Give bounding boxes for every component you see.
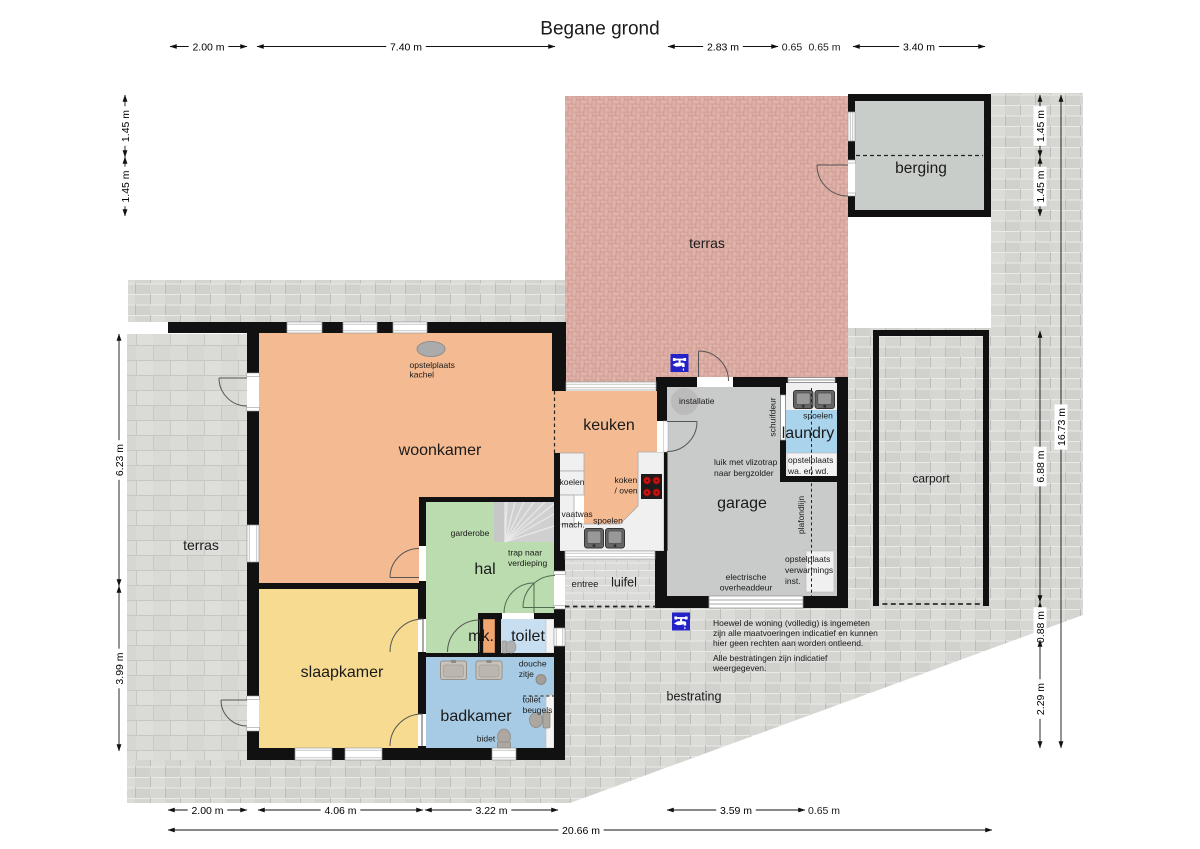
svg-text:laundry: laundry — [782, 425, 834, 442]
svg-text:berging: berging — [895, 160, 947, 177]
svg-text:hal: hal — [474, 561, 495, 578]
svg-text:overheaddeur: overheaddeur — [720, 583, 773, 593]
svg-text:wa. en wd.: wa. en wd. — [787, 466, 829, 476]
svg-text:zijn alle maatvoeringen indica: zijn alle maatvoeringen indicatief en ku… — [713, 628, 878, 638]
svg-text:verdieping: verdieping — [508, 558, 547, 568]
svg-text:4.06 m: 4.06 m — [324, 805, 356, 817]
svg-text:inst.: inst. — [785, 576, 801, 586]
svg-text:Alle bestratingen zijn indicat: Alle bestratingen zijn indicatief — [713, 653, 828, 663]
svg-text:1.45 m: 1.45 m — [120, 110, 132, 142]
svg-text:badkamer: badkamer — [440, 708, 512, 725]
svg-text:7.40 m: 7.40 m — [390, 41, 422, 53]
svg-text:hier geen rechten aan worden o: hier geen rechten aan worden ontleend. — [713, 638, 863, 648]
svg-text:3.99 m: 3.99 m — [114, 652, 126, 684]
svg-text:trap naar: trap naar — [508, 548, 542, 558]
svg-text:2.00 m: 2.00 m — [192, 41, 224, 53]
svg-text:toilet: toilet — [511, 628, 545, 645]
svg-text:koelen: koelen — [559, 477, 584, 487]
svg-text:Hoewel de woning (volledig) is: Hoewel de woning (volledig) is ingemeten — [713, 618, 870, 628]
svg-text:0.65: 0.65 — [782, 41, 803, 53]
svg-text:schuifdeur: schuifdeur — [768, 397, 778, 436]
svg-text:slaapkamer: slaapkamer — [301, 664, 384, 681]
svg-text:opstelplaats: opstelplaats — [410, 360, 455, 370]
svg-text:keuken: keuken — [583, 417, 635, 434]
svg-text:vaatwas: vaatwas — [562, 509, 593, 519]
svg-text:spoelen: spoelen — [593, 516, 623, 526]
svg-text:opstelplaats: opstelplaats — [788, 455, 833, 465]
svg-text:Begane grond: Begane grond — [540, 19, 659, 40]
svg-text:weergegeven.: weergegeven. — [712, 663, 766, 673]
svg-text:naar bergzolder: naar bergzolder — [714, 468, 774, 478]
svg-text:3.22 m: 3.22 m — [475, 805, 507, 817]
svg-text:1.45 m: 1.45 m — [1035, 110, 1047, 142]
svg-text:0.65 m: 0.65 m — [808, 805, 840, 817]
svg-text:1.45 m: 1.45 m — [120, 170, 132, 202]
svg-text:zitje: zitje — [519, 669, 534, 679]
svg-text:woonkamer: woonkamer — [398, 442, 482, 459]
svg-text:16.73 m: 16.73 m — [1056, 408, 1068, 446]
svg-text:plafondlijn: plafondlijn — [796, 496, 806, 535]
svg-text:bidet: bidet — [477, 734, 496, 744]
svg-text:verwarmings: verwarmings — [785, 565, 833, 575]
svg-text:douche: douche — [519, 659, 547, 669]
svg-text:6.88 m: 6.88 m — [1035, 450, 1047, 482]
svg-text:20.66 m: 20.66 m — [562, 825, 600, 837]
svg-text:luifel: luifel — [611, 576, 637, 590]
svg-text:2.00 m: 2.00 m — [191, 805, 223, 817]
svg-text:terras: terras — [183, 537, 219, 553]
svg-text:garderobe: garderobe — [451, 528, 490, 538]
svg-text:beugels: beugels — [523, 705, 553, 715]
svg-text:koken: koken — [615, 475, 638, 485]
svg-text:garage: garage — [717, 495, 767, 512]
svg-text:opstelplaats: opstelplaats — [785, 554, 830, 564]
svg-text:2.83 m: 2.83 m — [707, 41, 739, 53]
svg-text:terras: terras — [689, 235, 725, 251]
svg-text:entree: entree — [572, 579, 599, 590]
svg-text:mk.: mk. — [468, 628, 494, 645]
svg-text:1.45 m: 1.45 m — [1035, 170, 1047, 202]
svg-text:mach.: mach. — [562, 520, 585, 530]
svg-text:installatie: installatie — [679, 396, 715, 406]
svg-text:/ oven: / oven — [615, 486, 638, 496]
svg-text:bestrating: bestrating — [667, 690, 722, 704]
svg-text:electrische: electrische — [726, 572, 767, 582]
svg-text:2.29 m: 2.29 m — [1035, 683, 1047, 715]
svg-text:kachel: kachel — [410, 370, 435, 380]
svg-text:spoelen: spoelen — [803, 411, 833, 421]
svg-text:luik met vlizotrap: luik met vlizotrap — [714, 457, 778, 467]
svg-text:0.88 m: 0.88 m — [1035, 611, 1047, 643]
svg-text:6.23 m: 6.23 m — [114, 444, 126, 476]
svg-text:3.40 m: 3.40 m — [903, 41, 935, 53]
svg-text:toilet: toilet — [523, 695, 542, 705]
svg-text:carport: carport — [912, 472, 950, 486]
svg-text:3.59 m: 3.59 m — [720, 805, 752, 817]
svg-text:0.65 m: 0.65 m — [808, 41, 840, 53]
